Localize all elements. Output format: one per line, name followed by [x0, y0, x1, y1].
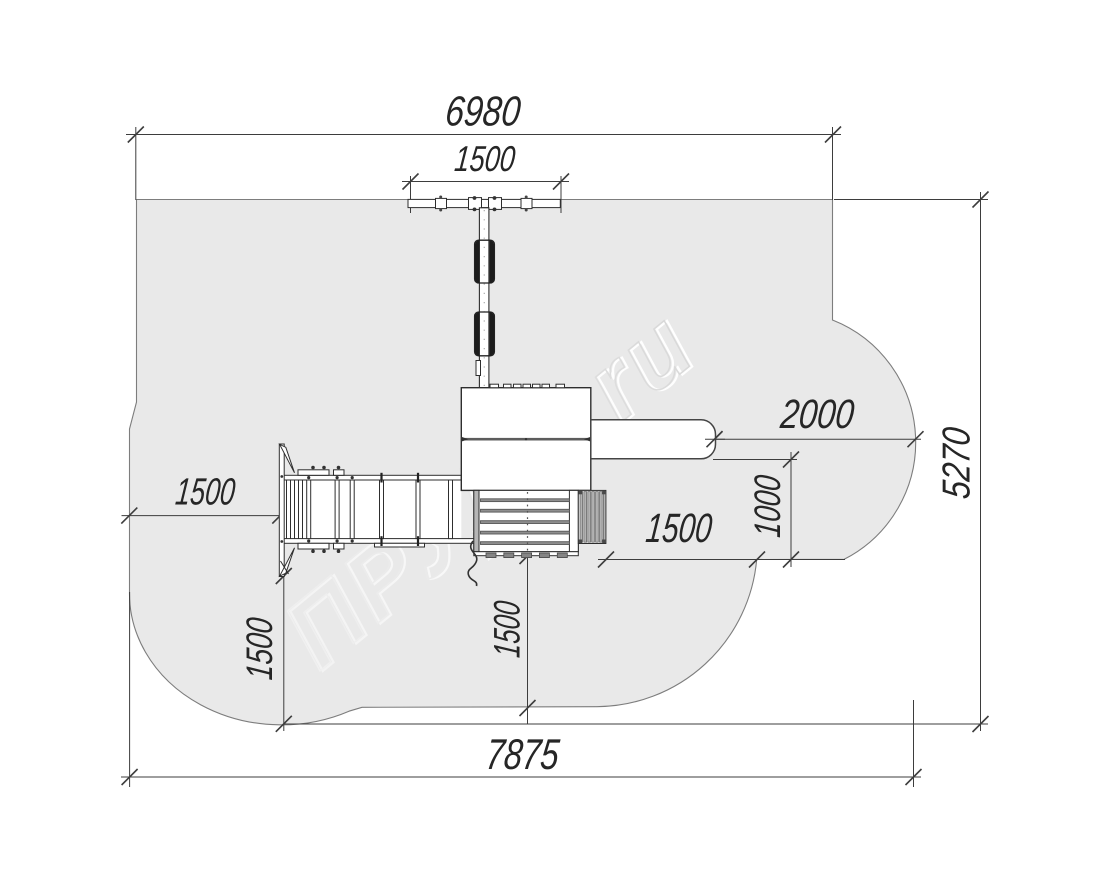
svg-text:1500: 1500: [486, 599, 528, 660]
svg-text:1500: 1500: [174, 470, 238, 513]
svg-text:7875: 7875: [484, 731, 562, 779]
svg-text:6980: 6980: [443, 88, 523, 135]
svg-text:1500: 1500: [238, 615, 280, 681]
svg-text:5270: 5270: [935, 425, 979, 501]
svg-text:2000: 2000: [778, 390, 857, 436]
svg-text:1000: 1000: [746, 473, 788, 539]
svg-text:1500: 1500: [453, 138, 518, 179]
svg-text:1500: 1500: [644, 506, 715, 552]
